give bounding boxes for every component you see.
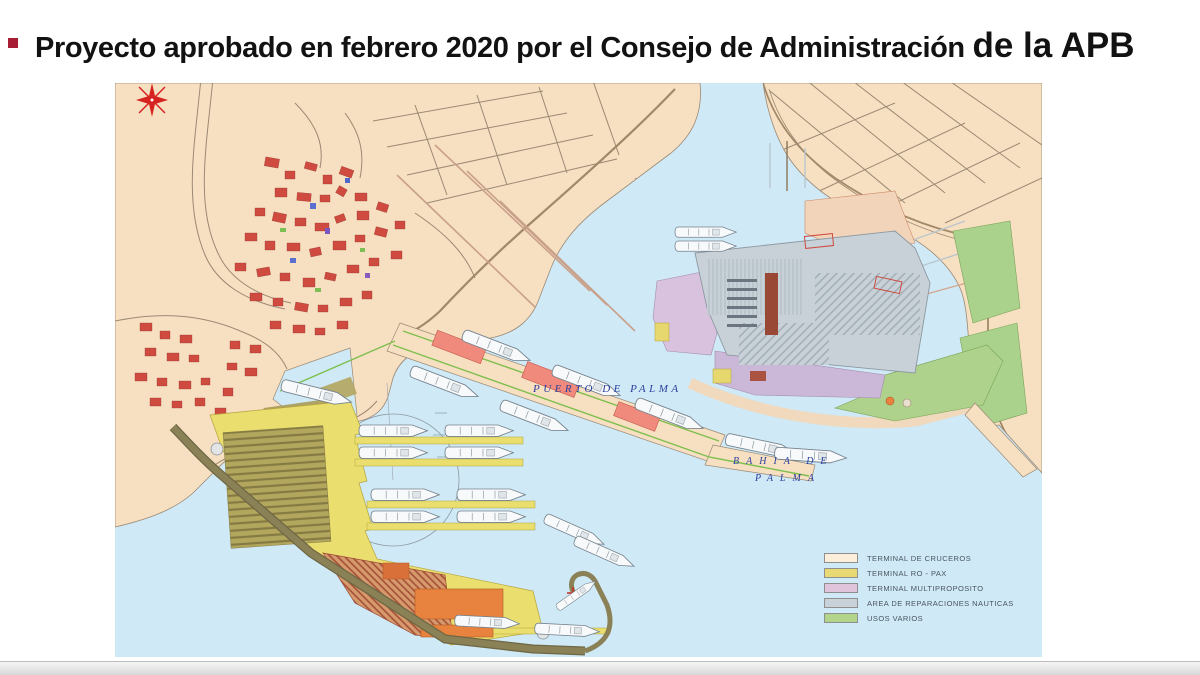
- map-legend: TERMINAL DE CRUCEROS TERMINAL RO - PAX T…: [824, 553, 1014, 623]
- legend-item-multiproposito: TERMINAL MULTIPROPOSITO: [824, 583, 1014, 593]
- legend-item-reparaciones: AREA DE REPARACIONES NAUTICAS: [824, 598, 1014, 608]
- compass-rose-icon: [136, 83, 168, 117]
- page-title: Proyecto aprobado en febrero 2020 por el…: [35, 26, 1135, 66]
- legend-swatch-multiproposito: [824, 583, 858, 593]
- page-title-main: Proyecto aprobado en febrero 2020 por el…: [35, 32, 965, 64]
- legend-swatch-usos-varios: [824, 613, 858, 623]
- slide-title-row: Proyecto aprobado en febrero 2020 por el…: [8, 26, 1135, 66]
- legend-label-cruceros: TERMINAL DE CRUCEROS: [867, 554, 971, 563]
- legend-label-multiproposito: TERMINAL MULTIPROPOSITO: [867, 584, 983, 593]
- slide: Proyecto aprobado en febrero 2020 por el…: [0, 0, 1200, 675]
- legend-swatch-reparaciones: [824, 598, 858, 608]
- port-map: PUERTO DE PALMA BAHIA DE PALMA TERMINAL …: [115, 83, 1042, 657]
- legend-item-usos-varios: USOS VARIOS: [824, 613, 1014, 623]
- legend-item-cruceros: TERMINAL DE CRUCEROS: [824, 553, 1014, 563]
- legend-label-reparaciones: AREA DE REPARACIONES NAUTICAS: [867, 599, 1014, 608]
- bay-name-label-line1: BAHIA DE: [733, 456, 834, 467]
- page-title-emphasis: de la APB: [972, 26, 1134, 65]
- harbor-name-label: PUERTO DE PALMA: [532, 383, 682, 395]
- title-bullet-icon: [8, 38, 18, 48]
- legend-swatch-cruceros: [824, 553, 858, 563]
- bay-name-label-line2: PALMA: [754, 473, 821, 484]
- legend-swatch-ropax: [824, 568, 858, 578]
- legend-label-usos-varios: USOS VARIOS: [867, 614, 923, 623]
- legend-label-ropax: TERMINAL RO - PAX: [867, 569, 947, 578]
- slide-footer-bar: [0, 661, 1200, 675]
- legend-item-ropax: TERMINAL RO - PAX: [824, 568, 1014, 578]
